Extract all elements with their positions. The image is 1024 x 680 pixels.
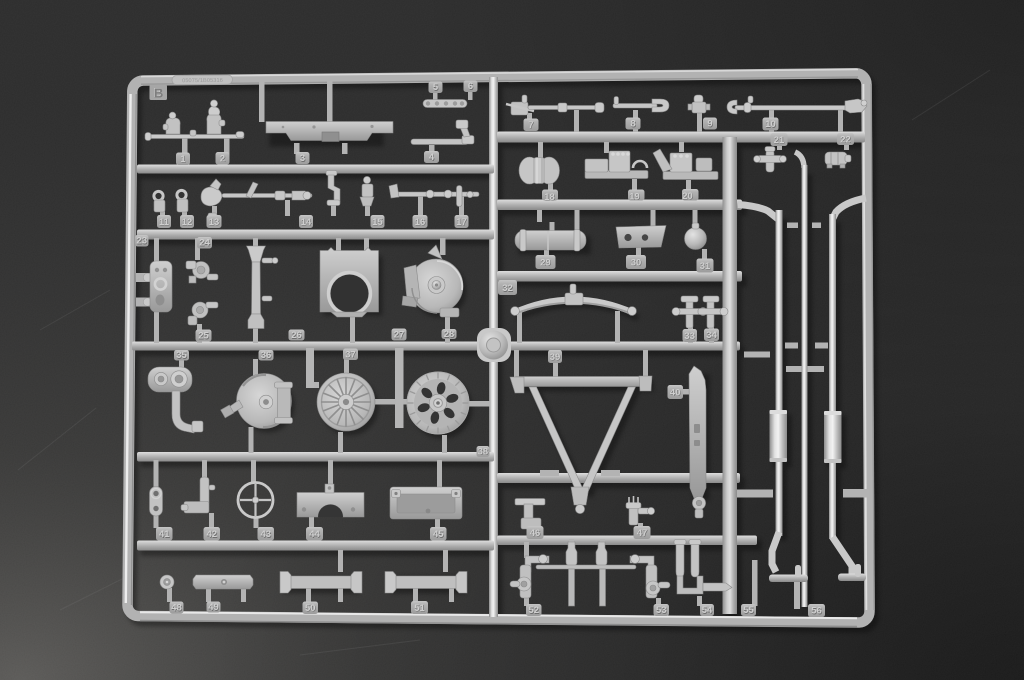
svg-text:24: 24 xyxy=(199,238,210,249)
svg-text:40: 40 xyxy=(670,387,681,398)
svg-text:13: 13 xyxy=(209,217,220,228)
svg-text:11: 11 xyxy=(159,217,170,228)
svg-text:27: 27 xyxy=(394,330,405,341)
svg-text:7: 7 xyxy=(528,120,533,131)
svg-text:30: 30 xyxy=(631,257,642,268)
svg-text:22: 22 xyxy=(840,134,851,145)
svg-text:36: 36 xyxy=(261,350,272,361)
svg-text:28: 28 xyxy=(444,329,455,340)
svg-text:41: 41 xyxy=(159,529,170,540)
svg-text:51: 51 xyxy=(414,603,425,614)
svg-text:48: 48 xyxy=(171,603,182,614)
svg-text:5: 5 xyxy=(433,82,439,93)
svg-text:46: 46 xyxy=(530,528,541,539)
svg-text:B: B xyxy=(154,86,163,101)
svg-text:26: 26 xyxy=(291,330,302,341)
svg-text:34: 34 xyxy=(706,330,717,341)
svg-text:1: 1 xyxy=(180,154,186,165)
svg-text:3: 3 xyxy=(300,153,305,164)
svg-text:54: 54 xyxy=(702,605,713,616)
svg-text:33: 33 xyxy=(684,331,695,342)
svg-text:35: 35 xyxy=(176,350,187,361)
svg-text:53: 53 xyxy=(656,605,667,616)
svg-text:20: 20 xyxy=(682,191,693,202)
svg-text:9: 9 xyxy=(707,119,712,130)
svg-text:25: 25 xyxy=(198,331,209,342)
svg-text:6: 6 xyxy=(468,81,473,92)
svg-text:18: 18 xyxy=(544,192,555,203)
svg-text:47: 47 xyxy=(637,528,648,539)
svg-text:15: 15 xyxy=(372,217,383,228)
svg-text:19: 19 xyxy=(629,191,640,202)
svg-text:8: 8 xyxy=(630,119,635,130)
svg-text:52: 52 xyxy=(529,605,540,616)
svg-text:10: 10 xyxy=(765,119,776,130)
svg-text:49: 49 xyxy=(208,602,219,613)
svg-text:39: 39 xyxy=(550,352,561,363)
svg-text:29: 29 xyxy=(540,257,551,268)
svg-text:21: 21 xyxy=(774,135,785,146)
svg-text:05075/1B05316: 05075/1B05316 xyxy=(182,78,223,84)
svg-text:56: 56 xyxy=(811,606,822,617)
svg-text:16: 16 xyxy=(415,217,426,228)
svg-text:4: 4 xyxy=(429,152,435,163)
svg-text:23: 23 xyxy=(136,236,147,247)
svg-text:37: 37 xyxy=(345,349,356,360)
svg-text:38: 38 xyxy=(478,446,489,457)
svg-text:31: 31 xyxy=(700,261,711,272)
svg-text:44: 44 xyxy=(309,529,320,540)
svg-text:2: 2 xyxy=(220,153,225,164)
svg-text:50: 50 xyxy=(305,603,316,614)
svg-text:32: 32 xyxy=(502,283,513,294)
svg-text:42: 42 xyxy=(207,529,218,540)
svg-text:43: 43 xyxy=(261,529,272,540)
svg-text:12: 12 xyxy=(182,217,193,228)
svg-text:45: 45 xyxy=(433,529,444,540)
svg-text:14: 14 xyxy=(301,217,312,228)
svg-text:17: 17 xyxy=(456,217,467,228)
svg-text:55: 55 xyxy=(743,605,754,616)
